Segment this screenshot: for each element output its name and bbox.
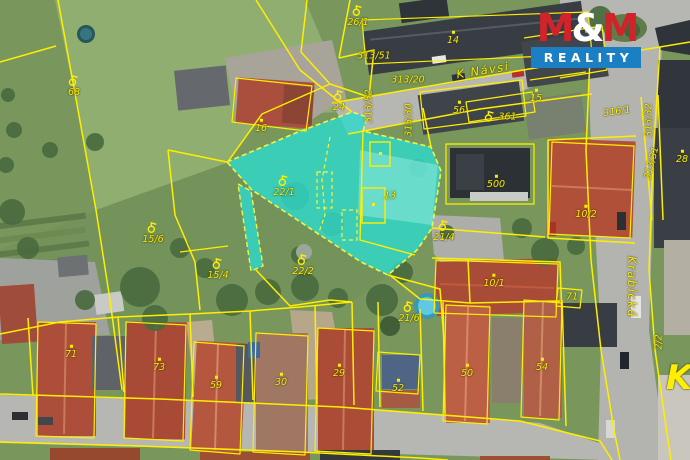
cadastral-map[interactable]: 6815/615/426/12416313/51313/201456361313…: [0, 0, 690, 460]
logo-ampersand: &: [570, 6, 601, 50]
mm-reality-logo: M&M REALITY: [531, 10, 641, 68]
logo-m2: M: [602, 6, 636, 50]
logo-reality-bar: REALITY: [531, 47, 641, 68]
logo-mm: M&M: [531, 10, 641, 46]
logo-m1: M: [537, 6, 571, 50]
aerial-imagery-layer: [0, 0, 690, 460]
